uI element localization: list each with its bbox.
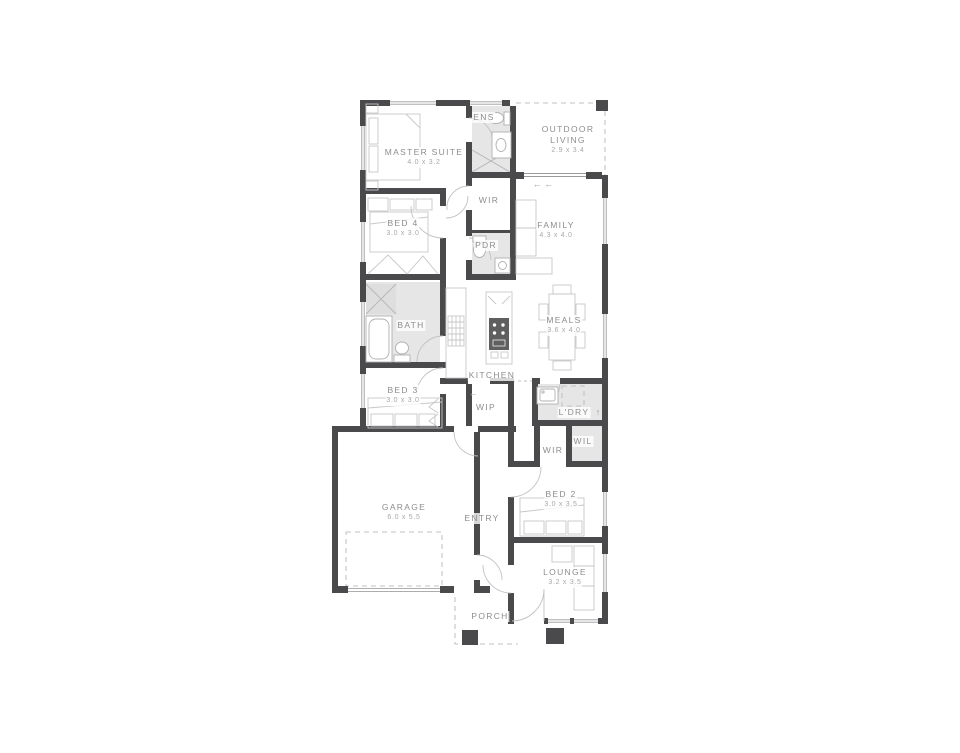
wip-entry-arrow-icon: ← <box>469 388 478 398</box>
master-door <box>446 196 468 218</box>
bed4-robe-doors-icon <box>368 255 438 274</box>
ens-vanity-icon <box>492 132 511 158</box>
front-door <box>512 589 544 621</box>
bed3-door <box>417 368 443 394</box>
kitchen-bench-icon <box>446 288 466 378</box>
cooktop-icon <box>489 318 509 358</box>
bed3-bed-icon <box>368 398 442 428</box>
walls <box>332 100 608 645</box>
bed4-door <box>411 206 443 238</box>
laundry-sink-icon <box>537 387 558 404</box>
lounge-sofa-icon <box>552 546 594 610</box>
floor-plan: ← ← ← ↑ <box>0 0 960 753</box>
dashed-outlines <box>346 103 605 644</box>
sliding-door-icon <box>524 174 586 177</box>
car-space <box>346 532 442 586</box>
bed4-bed-icon <box>368 198 432 252</box>
family-sofa-icon <box>516 200 552 274</box>
wet-area-fills <box>366 106 602 461</box>
bed2-door <box>511 467 541 497</box>
garage-access-door <box>477 555 502 580</box>
pdr-basin-icon <box>495 258 510 273</box>
pdr-toilet-icon <box>473 236 486 258</box>
laundry-exit-arrow-icon: ↑ <box>596 407 601 417</box>
garage-door-icon <box>348 589 440 592</box>
sliding-door-arrows-icon: ← ← <box>533 179 554 189</box>
dining-table-icon <box>539 285 585 370</box>
floor-plan-canvas: ← ← ← ↑ MASTER SUITE 4.0 x 3.2 ENS OUTDO… <box>0 0 960 753</box>
master-bed-icon <box>366 104 420 190</box>
bathtub-icon <box>366 316 392 362</box>
bed2-bed-icon <box>520 498 584 536</box>
